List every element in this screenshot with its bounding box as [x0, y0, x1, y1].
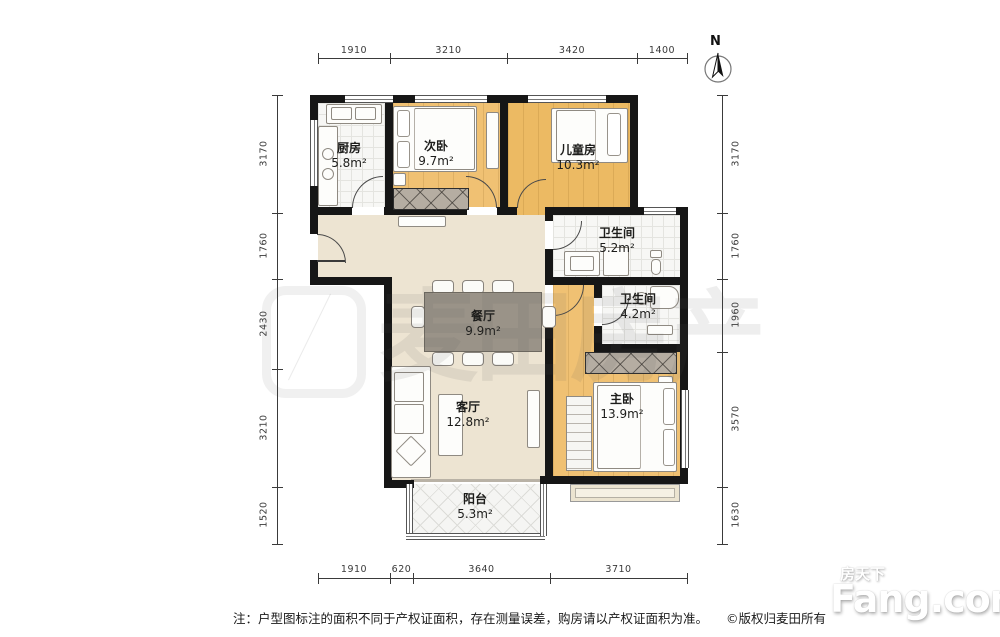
bath1-area: 5.2m² — [586, 241, 648, 256]
balcony-name: 阳台 — [440, 492, 510, 507]
wall — [630, 95, 638, 215]
dim-bottom-3: 3640 — [413, 564, 550, 575]
room-label-kids: 儿童房 10.3m² — [540, 143, 616, 173]
toilet-icon — [651, 259, 661, 275]
pillow-icon — [663, 388, 675, 425]
dimension-rail-left — [277, 95, 278, 545]
chair-icon — [432, 352, 454, 366]
sink-basin-icon — [355, 107, 376, 120]
nightstand-icon — [393, 173, 406, 186]
master-area: 13.9m² — [588, 407, 656, 422]
room-label-master: 主卧 13.9m² — [588, 392, 656, 422]
window — [528, 95, 606, 103]
sofa-cushion-icon — [394, 372, 424, 402]
chair-icon — [462, 352, 484, 366]
wardrobe-icon — [585, 352, 677, 374]
balcony-threshold — [411, 479, 540, 482]
chair-icon — [542, 306, 556, 328]
dim-bottom-2: 620 — [388, 564, 415, 575]
bay-window-inner — [575, 488, 675, 498]
living-area: 12.8m² — [433, 415, 503, 430]
dim-left-3: 2430 — [259, 304, 270, 344]
dining-table-icon: 餐厅 9.9m² — [424, 292, 542, 352]
living-name: 客厅 — [433, 400, 503, 415]
chair-icon — [492, 352, 514, 366]
dresser-icon — [486, 112, 499, 169]
dining-room-name: 餐厅 — [471, 307, 495, 324]
dim-left-5: 1520 — [259, 495, 270, 535]
room-label-bedroom2: 次卧 9.7m² — [406, 139, 466, 169]
toilet-tank-icon — [650, 250, 662, 258]
window — [540, 484, 547, 536]
bedroom2-name: 次卧 — [406, 139, 466, 154]
bathroom-sink-icon — [570, 256, 594, 271]
dim-top-4: 1400 — [637, 45, 687, 56]
room-label-living: 客厅 12.8m² — [433, 400, 503, 430]
wall — [594, 344, 688, 352]
room-label-kitchen: 厨房 5.8m² — [320, 141, 378, 171]
wall — [545, 207, 630, 215]
dim-bottom-1: 1910 — [318, 564, 390, 575]
kitchen-area: 5.8m² — [320, 156, 378, 171]
chair-icon — [411, 306, 425, 328]
dim-bottom-4: 3710 — [550, 564, 687, 575]
wall — [385, 103, 393, 207]
wall — [594, 285, 602, 298]
dim-left-1: 3170 — [259, 134, 270, 174]
master-name: 主卧 — [588, 392, 656, 407]
window — [406, 533, 545, 540]
window — [345, 95, 393, 103]
wall — [545, 249, 553, 279]
fang-brand-logo: Fang.com — [830, 577, 1000, 621]
wall — [540, 476, 688, 484]
window — [681, 390, 689, 468]
dimension-rail-right — [722, 95, 723, 545]
dim-right-2: 1760 — [731, 226, 742, 266]
tv-stand-icon — [527, 390, 540, 448]
dim-right-5: 1630 — [731, 495, 742, 535]
bathroom-sink-icon — [647, 325, 673, 335]
sink-basin-icon — [331, 107, 352, 120]
window — [415, 95, 487, 103]
entry-door-leaf — [317, 260, 345, 262]
dim-right-1: 3170 — [731, 134, 742, 174]
bath2-name: 卫生间 — [607, 292, 669, 307]
wall — [310, 207, 352, 215]
compass-icon — [701, 49, 735, 87]
wall — [310, 277, 392, 285]
dimension-rail-top — [318, 58, 688, 59]
dim-top-1: 1910 — [318, 45, 390, 56]
balcony-area: 5.3m² — [440, 507, 510, 522]
kitchen-name: 厨房 — [320, 141, 378, 156]
window — [644, 207, 676, 215]
copyright-note: ©版权归麦田所有 — [726, 611, 826, 626]
dim-top-3: 3420 — [507, 45, 637, 56]
sideboard-icon — [398, 216, 446, 227]
north-label: N — [710, 34, 721, 49]
kids-room-area: 10.3m² — [540, 158, 616, 173]
pillow-icon — [663, 429, 675, 466]
dim-left-4: 3210 — [259, 408, 270, 448]
window — [310, 120, 318, 186]
bath1-name: 卫生间 — [586, 226, 648, 241]
wall — [545, 311, 553, 476]
wall — [497, 207, 517, 215]
floorplan-page: 餐厅 9.9m² 厨房 5.8m² 次卧 9.7m² 儿童房 10.3m² 卫生… — [0, 0, 1000, 637]
wall — [545, 277, 688, 285]
room-label-bath1: 卫生间 5.2m² — [586, 226, 648, 256]
bedroom2-area: 9.7m² — [406, 154, 466, 169]
footer-note-row: 注：户型图标注的面积不同于产权证面积，存在测量误差，购房请以产权证面积为准。 ©… — [233, 608, 826, 627]
dim-left-2: 1760 — [259, 226, 270, 266]
dim-right-4: 3570 — [731, 399, 742, 439]
dining-room-area: 9.9m² — [465, 324, 501, 338]
bath2-area: 4.2m² — [607, 307, 669, 322]
sofa-cushion-icon — [394, 404, 424, 434]
dim-right-3: 1960 — [731, 295, 742, 335]
dim-top-2: 3210 — [390, 45, 507, 56]
wall — [545, 207, 553, 221]
bay-window — [570, 484, 680, 502]
kids-room-name: 儿童房 — [540, 143, 616, 158]
pillow-icon — [397, 110, 410, 137]
disclaimer-note: 注：户型图标注的面积不同于产权证面积，存在测量误差，购房请以产权证面积为准。 — [233, 611, 708, 626]
window — [406, 484, 413, 536]
room-label-bath2: 卫生间 4.2m² — [607, 292, 669, 322]
wall — [500, 103, 508, 207]
room-label-balcony: 阳台 5.3m² — [440, 492, 510, 522]
dimension-rail-bottom — [318, 578, 688, 579]
wardrobe-icon — [393, 188, 469, 210]
